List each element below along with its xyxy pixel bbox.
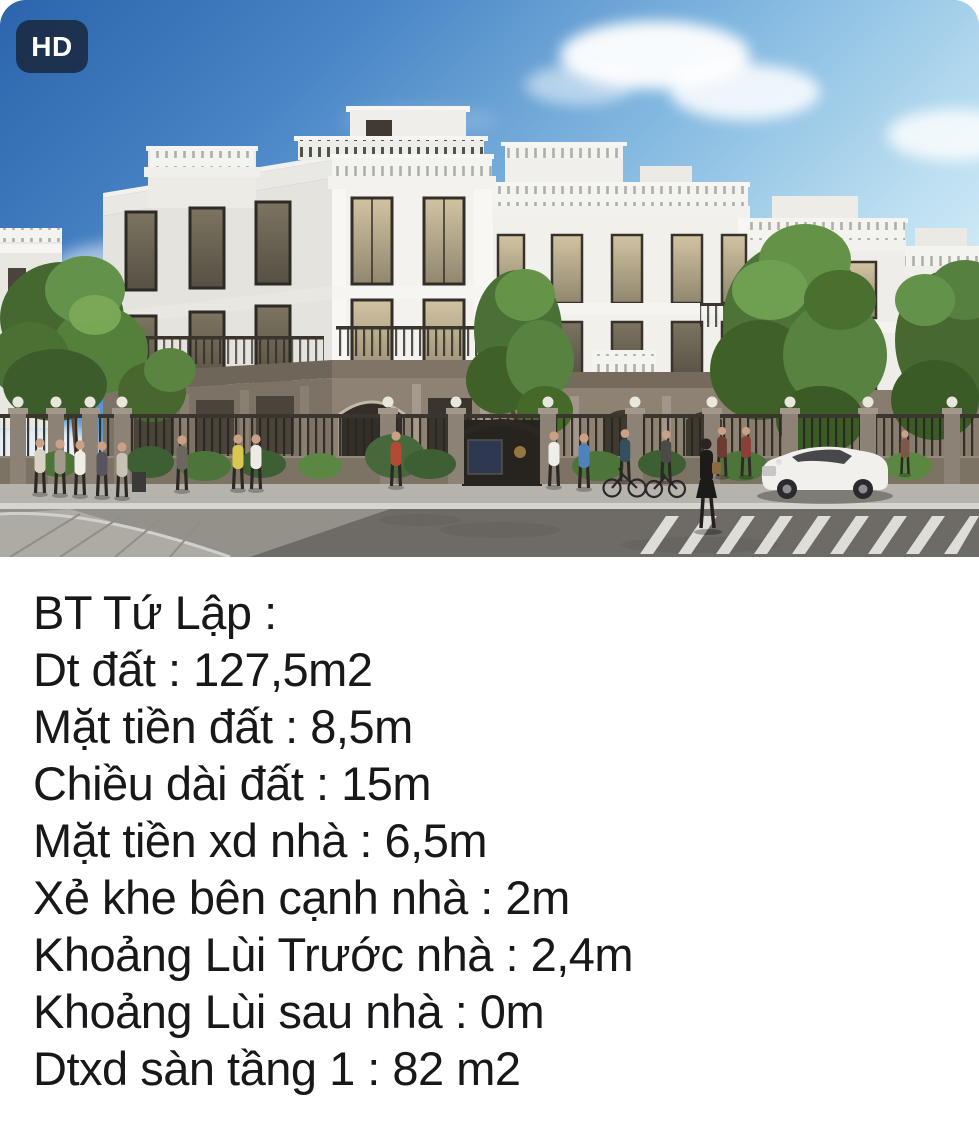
caption-line: Dt đất : 127,5m2 bbox=[33, 641, 959, 698]
caption-line: Dtxd sàn tầng 1 : 82 m2 bbox=[33, 1040, 959, 1097]
caption-line: Mặt tiền xd nhà : 6,5m bbox=[33, 812, 959, 869]
hd-quality-badge: HD bbox=[16, 20, 88, 73]
caption-line: Xẻ khe bên cạnh nhà : 2m bbox=[33, 869, 959, 926]
caption-line: Mặt tiền đất : 8,5m bbox=[33, 698, 959, 755]
listing-details: BT Tứ Lập : Dt đất : 127,5m2 Mặt tiền đấ… bbox=[0, 557, 979, 1097]
road bbox=[0, 509, 979, 557]
real-estate-post: HD BT Tứ Lập : Dt đất : 127,5m2 Mặt tiền… bbox=[0, 0, 979, 1136]
gate bbox=[462, 419, 542, 486]
hd-badge-label: HD bbox=[31, 31, 72, 63]
villa-render-scene bbox=[0, 0, 979, 557]
caption-line: Khoảng Lùi sau nhà : 0m bbox=[33, 983, 959, 1040]
villa-render-photo[interactable]: HD bbox=[0, 0, 979, 557]
caption-line: Khoảng Lùi Trước nhà : 2,4m bbox=[33, 926, 959, 983]
caption-line: Chiều dài đất : 15m bbox=[33, 755, 959, 812]
listing-title: BT Tứ Lập : bbox=[33, 584, 959, 641]
